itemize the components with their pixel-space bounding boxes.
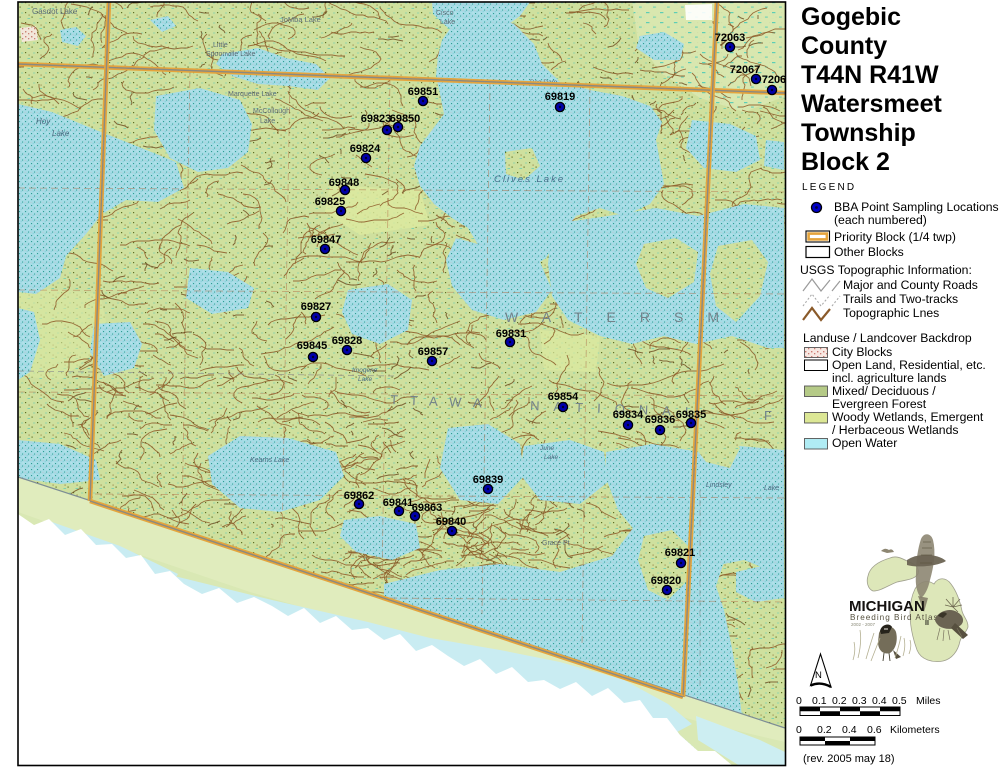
svg-text:Lindsley: Lindsley	[706, 482, 732, 489]
svg-text:0.6: 0.6	[867, 724, 882, 736]
svg-text:2002 - 2007: 2002 - 2007	[851, 622, 876, 627]
svg-text:Lake: Lake	[260, 118, 275, 125]
svg-text:McCollough: McCollough	[253, 108, 290, 115]
svg-text:Cisco: Cisco	[436, 10, 454, 17]
svg-text:69819: 69819	[545, 91, 576, 103]
svg-text:N: N	[815, 670, 822, 681]
svg-text:Woody Wetlands, Emergent: Woody Wetlands, Emergent	[832, 410, 984, 424]
svg-text:69824: 69824	[350, 143, 381, 155]
svg-text:/ Herbaceous Wetlands: / Herbaceous Wetlands	[832, 423, 958, 437]
svg-text:Major and County Roads: Major and County Roads	[843, 278, 978, 292]
svg-text:69828: 69828	[332, 335, 363, 347]
svg-text:Township: Township	[801, 119, 916, 147]
svg-text:Spoonville Lake: Spoonville Lake	[206, 51, 256, 58]
svg-text:69840: 69840	[436, 516, 467, 528]
svg-text:0: 0	[796, 695, 802, 707]
svg-text:Hoy: Hoy	[36, 117, 51, 126]
svg-text:Open Land, Residential, etc.: Open Land, Residential, etc.	[832, 358, 986, 372]
svg-text:Clives Lake: Clives Lake	[494, 174, 565, 185]
svg-text:Priority Block (1/4 twp): Priority Block (1/4 twp)	[834, 230, 956, 244]
svg-text:Lake: Lake	[52, 129, 70, 138]
svg-text:Marquette Lake: Marquette Lake	[228, 91, 277, 98]
svg-text:69850: 69850	[390, 113, 421, 125]
svg-text:69863: 69863	[412, 502, 443, 514]
svg-text:Lake: Lake	[764, 485, 779, 492]
svg-text:Grace Pt: Grace Pt	[542, 540, 570, 547]
svg-text:Mixed/ Deciduous /: Mixed/ Deciduous /	[832, 384, 936, 398]
svg-text:0.4: 0.4	[842, 724, 857, 736]
svg-text:69854: 69854	[548, 391, 579, 403]
svg-text:0.3: 0.3	[852, 695, 867, 707]
svg-text:0.5: 0.5	[892, 695, 907, 707]
svg-text:County: County	[801, 32, 887, 60]
svg-text:City Blocks: City Blocks	[832, 345, 892, 359]
svg-text:Kilometers: Kilometers	[890, 724, 940, 736]
svg-text:69841: 69841	[383, 497, 414, 509]
svg-text:Topographic Lnes: Topographic Lnes	[843, 306, 939, 320]
svg-text:Open Water: Open Water	[832, 436, 897, 450]
svg-text:Gasdot Lake: Gasdot Lake	[32, 7, 78, 16]
svg-text:(each numbered): (each numbered)	[834, 213, 927, 227]
svg-text:69825: 69825	[315, 196, 346, 208]
svg-text:69851: 69851	[408, 86, 439, 98]
svg-text:Other Blocks: Other Blocks	[834, 245, 904, 259]
svg-text:69834: 69834	[613, 409, 644, 421]
svg-text:69823: 69823	[361, 113, 392, 125]
svg-text:0.1: 0.1	[812, 695, 827, 707]
svg-text:Block 2: Block 2	[801, 148, 890, 176]
svg-text:T44N R41W: T44N R41W	[801, 61, 939, 89]
svg-text:69821: 69821	[665, 547, 696, 559]
svg-text:69827: 69827	[301, 301, 332, 313]
svg-text:0.2: 0.2	[817, 724, 832, 736]
svg-text:0.2: 0.2	[832, 695, 847, 707]
svg-text:USGS Topographic Information:: USGS Topographic Information:	[800, 263, 972, 277]
svg-text:Little: Little	[213, 42, 228, 49]
svg-text:BBA Point Sampling Locations: BBA Point Sampling Locations	[834, 200, 999, 214]
svg-text:Watersmeet: Watersmeet	[801, 90, 942, 118]
svg-text:69820: 69820	[651, 575, 682, 587]
svg-text:LEGEND: LEGEND	[802, 182, 856, 193]
svg-text:Imogene: Imogene	[352, 367, 378, 374]
svg-text:69845: 69845	[297, 340, 328, 352]
svg-text:Trails and Two-tracks: Trails and Two-tracks	[843, 292, 958, 306]
svg-text:Landuse / Landcover Backdrop: Landuse / Landcover Backdrop	[803, 331, 972, 345]
svg-text:72068: 72068	[762, 74, 793, 86]
svg-text:69848: 69848	[329, 177, 360, 189]
svg-text:Lake: Lake	[544, 454, 558, 461]
svg-text:II: II	[925, 620, 929, 627]
svg-text:Lake: Lake	[358, 376, 372, 383]
svg-text:69836: 69836	[645, 414, 676, 426]
svg-text:0: 0	[796, 724, 802, 736]
svg-text:72067: 72067	[730, 64, 761, 76]
svg-text:69862: 69862	[344, 490, 375, 502]
svg-text:Miles: Miles	[916, 695, 941, 707]
svg-text:69839: 69839	[473, 474, 504, 486]
svg-text:(rev. 2005 may 18): (rev. 2005 may 18)	[803, 753, 895, 765]
svg-text:incl. agriculture lands: incl. agriculture lands	[832, 371, 946, 385]
svg-text:69835: 69835	[676, 409, 707, 421]
svg-text:WATERSM: WATERSM	[505, 309, 743, 325]
svg-text:Gogebic: Gogebic	[801, 3, 901, 31]
svg-text:69857: 69857	[418, 346, 449, 358]
svg-text:June: June	[539, 445, 554, 452]
svg-text:Lake: Lake	[440, 19, 455, 26]
svg-text:0.4: 0.4	[872, 695, 887, 707]
svg-text:69847: 69847	[311, 234, 342, 246]
svg-text:72063: 72063	[715, 32, 746, 44]
svg-text:69831: 69831	[496, 328, 527, 340]
svg-text:Evergreen Forest: Evergreen Forest	[832, 397, 927, 411]
svg-text:JoMba Lake: JoMba Lake	[280, 15, 321, 24]
